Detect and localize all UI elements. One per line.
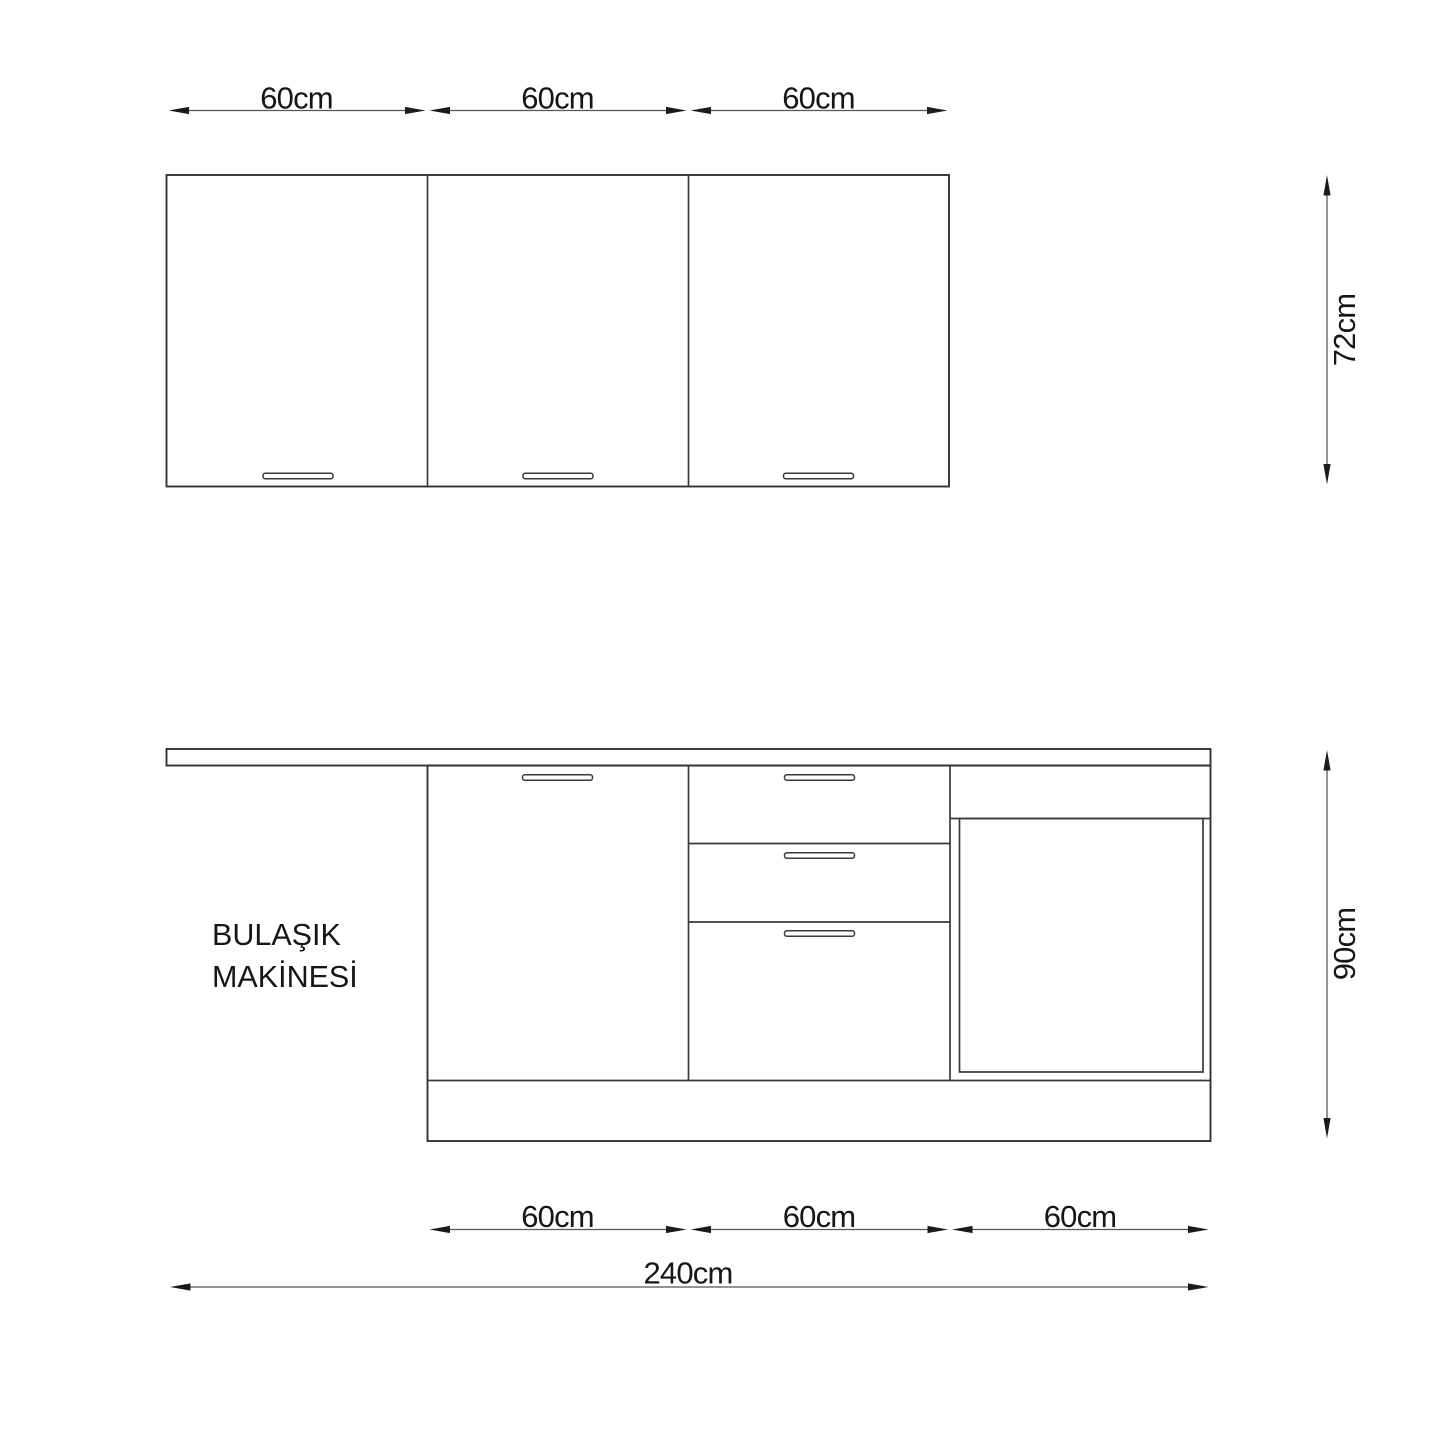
svg-text:60cm: 60cm bbox=[521, 81, 594, 116]
svg-text:60cm: 60cm bbox=[521, 1199, 594, 1234]
svg-text:240cm: 240cm bbox=[643, 1256, 732, 1291]
svg-text:60cm: 60cm bbox=[260, 81, 333, 116]
svg-text:60cm: 60cm bbox=[782, 81, 855, 116]
svg-text:BULAŞIK: BULAŞIK bbox=[212, 918, 341, 952]
svg-text:90cm: 90cm bbox=[1327, 908, 1362, 981]
svg-text:MAKİNESİ: MAKİNESİ bbox=[212, 959, 358, 994]
svg-text:72cm: 72cm bbox=[1327, 294, 1362, 367]
svg-text:60cm: 60cm bbox=[783, 1199, 856, 1234]
svg-text:60cm: 60cm bbox=[1044, 1199, 1117, 1234]
